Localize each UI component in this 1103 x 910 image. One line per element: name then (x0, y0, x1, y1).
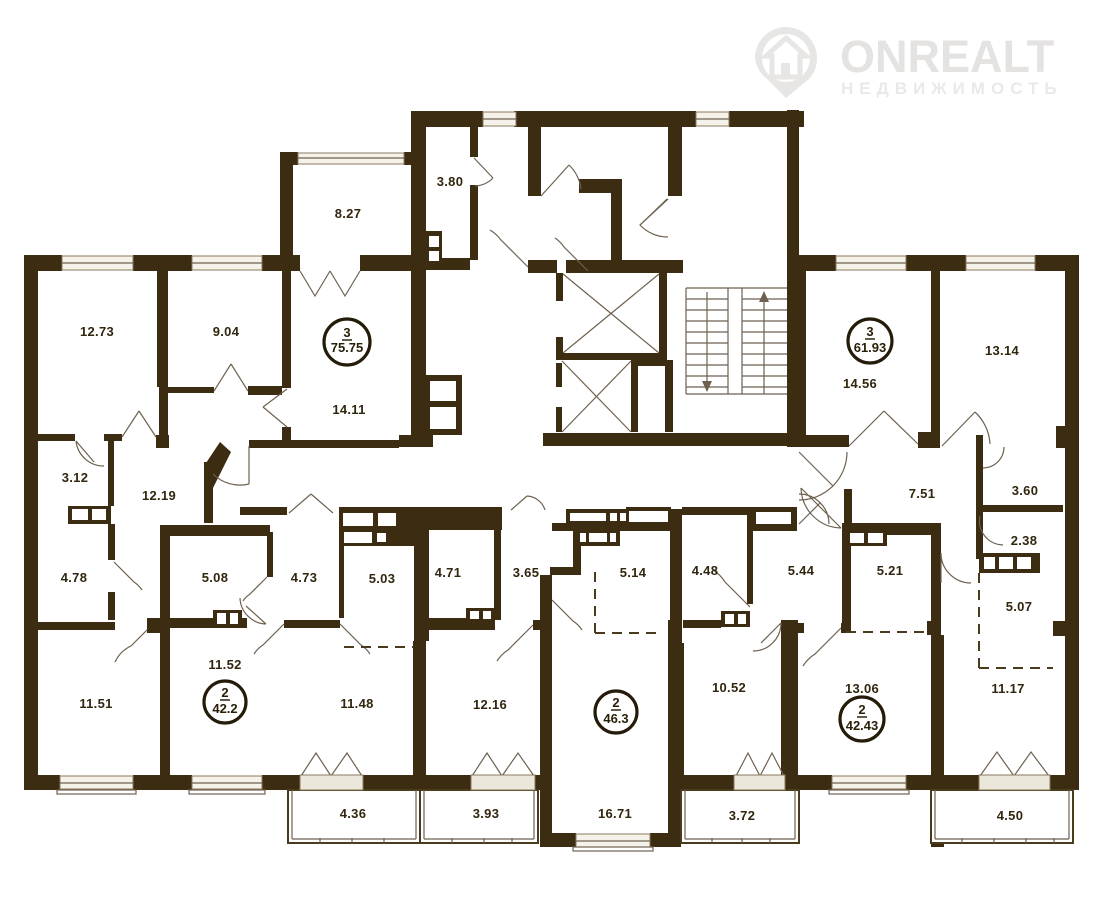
svg-text:5.03: 5.03 (369, 571, 396, 586)
svg-text:3.12: 3.12 (62, 470, 89, 485)
svg-text:2: 2 (612, 695, 619, 710)
svg-text:3.80: 3.80 (437, 174, 464, 189)
svg-text:14.11: 14.11 (332, 402, 365, 417)
svg-text:11.48: 11.48 (340, 696, 373, 711)
svg-text:61.93: 61.93 (854, 340, 887, 355)
svg-text:16.71: 16.71 (598, 806, 632, 821)
svg-text:46.3: 46.3 (603, 711, 628, 726)
svg-text:3.60: 3.60 (1012, 483, 1039, 498)
svg-text:8.27: 8.27 (335, 206, 362, 221)
svg-text:3: 3 (343, 325, 350, 340)
svg-text:11.51: 11.51 (79, 696, 112, 711)
svg-text:11.17: 11.17 (991, 681, 1024, 696)
svg-text:12.73: 12.73 (80, 324, 114, 339)
svg-text:3.65: 3.65 (513, 565, 540, 580)
svg-text:3: 3 (866, 324, 873, 339)
svg-text:4.73: 4.73 (291, 570, 318, 585)
svg-text:10.52: 10.52 (712, 680, 746, 695)
svg-text:ONREALT: ONREALT (840, 31, 1054, 82)
svg-text:5.21: 5.21 (877, 563, 904, 578)
svg-text:9.04: 9.04 (213, 324, 240, 339)
svg-text:42.43: 42.43 (846, 718, 879, 733)
svg-text:11.52: 11.52 (208, 657, 241, 672)
svg-text:75.75: 75.75 (331, 340, 364, 355)
svg-text:5.44: 5.44 (788, 563, 815, 578)
svg-text:3.72: 3.72 (729, 808, 756, 823)
svg-text:13.14: 13.14 (985, 343, 1020, 358)
svg-text:12.16: 12.16 (473, 697, 507, 712)
svg-text:4.78: 4.78 (61, 570, 88, 585)
svg-text:НЕДВИЖИМОСТЬ: НЕДВИЖИМОСТЬ (841, 79, 1063, 98)
svg-text:12.19: 12.19 (142, 488, 176, 503)
svg-text:4.71: 4.71 (435, 565, 462, 580)
svg-text:5.14: 5.14 (620, 565, 647, 580)
svg-text:4.50: 4.50 (997, 808, 1024, 823)
svg-text:14.56: 14.56 (843, 376, 877, 391)
svg-text:42.2: 42.2 (212, 701, 237, 716)
svg-text:4.48: 4.48 (692, 563, 719, 578)
svg-text:3.93: 3.93 (473, 806, 500, 821)
svg-text:2.38: 2.38 (1011, 533, 1038, 548)
svg-text:2: 2 (221, 685, 228, 700)
svg-text:13.06: 13.06 (845, 681, 879, 696)
svg-text:2: 2 (858, 702, 865, 717)
svg-text:4.36: 4.36 (340, 806, 367, 821)
svg-text:5.08: 5.08 (202, 570, 229, 585)
svg-text:7.51: 7.51 (909, 486, 936, 501)
svg-text:5.07: 5.07 (1006, 599, 1033, 614)
